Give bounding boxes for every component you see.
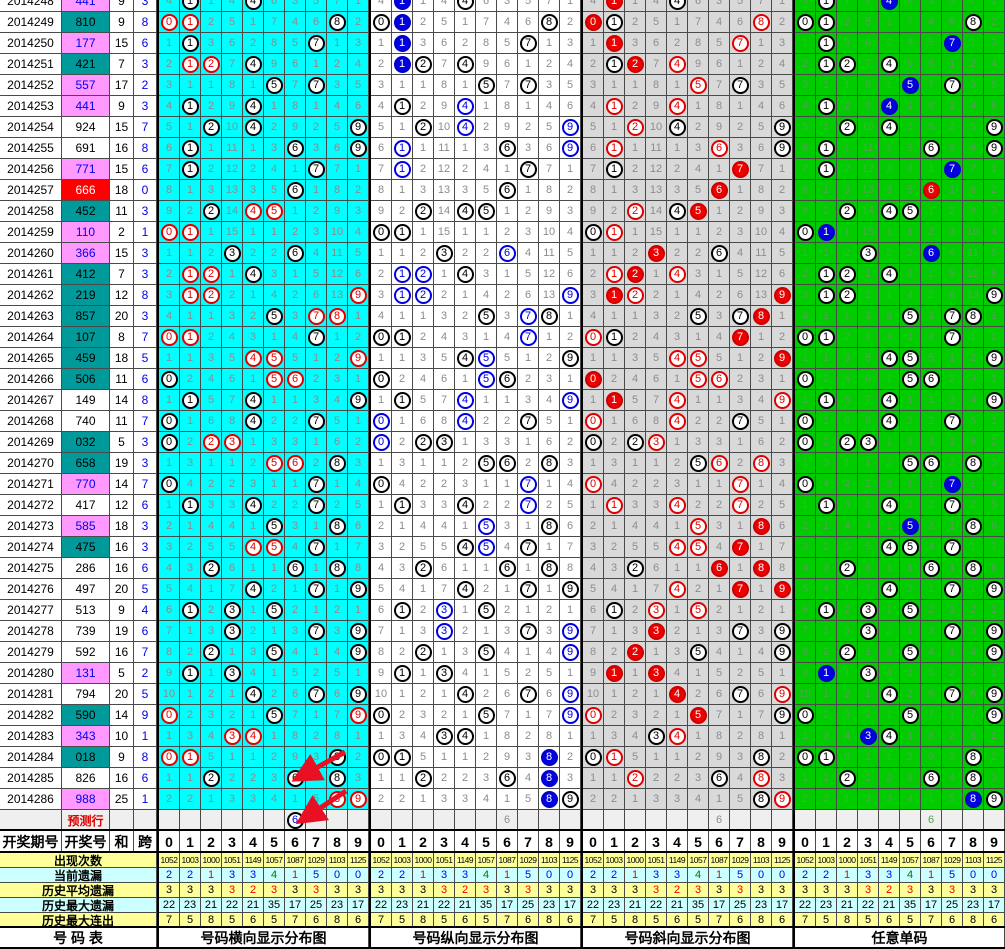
miss-count-cell: 1: [327, 537, 348, 558]
period-cell: 2014265: [0, 348, 62, 369]
miss-count-cell: 3: [201, 621, 222, 642]
miss-count-cell: 9: [858, 96, 879, 117]
miss-count-cell: 7: [942, 684, 963, 705]
miss-count-cell: 13: [963, 285, 984, 306]
miss-count-cell: 1: [159, 243, 180, 264]
miss-count-cell: 1: [646, 684, 667, 705]
miss-count-cell: 4: [816, 474, 837, 495]
miss-count-cell: 1: [413, 306, 434, 327]
miss-count-cell: 1: [604, 663, 625, 684]
miss-count-cell: 2: [900, 747, 921, 768]
miss-count-cell: 6: [539, 138, 560, 159]
miss-count-cell: 3: [518, 747, 539, 768]
drawn-number-circle: 3: [436, 245, 453, 262]
drawn-number-circle: 0: [797, 371, 814, 388]
period-cell: 2014261: [0, 264, 62, 285]
clipped-wrap: 4: [583, 0, 603, 12]
drawn-number-circle: 9: [562, 140, 579, 157]
miss-count-cell: [604, 810, 625, 831]
miss-count-cell: 7: [730, 684, 751, 705]
miss-count-cell: [583, 810, 604, 831]
period-cell: 2014272: [0, 495, 62, 516]
drawn-number-circle: 7: [308, 539, 325, 556]
miss-count-cell: 0: [371, 222, 392, 243]
sum-cell: 19: [110, 621, 134, 642]
miss-count-cell: 4: [879, 96, 900, 117]
miss-count-cell: 4: [795, 96, 816, 117]
miss-count-cell: 2: [201, 474, 222, 495]
miss-count-cell: [816, 810, 837, 831]
miss-count-cell: 1: [730, 180, 751, 201]
drawn-number-circle: 1: [394, 266, 411, 283]
drawn-number-circle: 9: [986, 287, 1003, 304]
miss-count-cell: 2: [625, 432, 646, 453]
miss-count-cell: 5: [222, 348, 243, 369]
miss-count-cell: 1: [413, 0, 434, 12]
miss-count-cell: 1: [816, 264, 837, 285]
miss-count-cell: 0: [795, 369, 816, 390]
miss-count-cell: 5: [942, 0, 963, 12]
miss-count-cell: 7: [751, 159, 772, 180]
miss-count-cell: 5: [837, 390, 858, 411]
miss-count-cell: 7: [963, 159, 984, 180]
miss-count-cell: 2: [667, 33, 688, 54]
miss-count-cell: 4: [900, 789, 921, 810]
drawn-number-circle: 4: [669, 350, 686, 367]
drawn-number-circle: 2: [839, 203, 856, 220]
miss-count-cell: 2: [180, 369, 201, 390]
period-cell: 2014285: [0, 768, 62, 789]
miss-count-cell: 4: [879, 495, 900, 516]
span-cell: 7: [134, 411, 157, 432]
clipped-wrap: 6: [900, 0, 920, 12]
miss-count-cell: 4: [667, 201, 688, 222]
drawn-number-circle: 0: [161, 413, 178, 430]
miss-count-cell: 1: [667, 75, 688, 96]
clipped-wrap: 4: [879, 0, 899, 12]
miss-count-cell: 10: [371, 684, 392, 705]
miss-count-cell: 1: [816, 411, 837, 432]
stat-value: 1125: [560, 853, 581, 868]
miss-count-cell: 2: [879, 768, 900, 789]
miss-count-cell: 2: [604, 642, 625, 663]
miss-count-cell: 2: [413, 12, 434, 33]
miss-count-cell: 4: [709, 642, 730, 663]
stat-value: 4: [900, 868, 921, 883]
drawn-number-circle: 1: [182, 140, 199, 157]
drawn-number-circle: 1: [394, 98, 411, 115]
miss-count-cell: 1: [264, 474, 285, 495]
miss-count-cell: 2: [751, 600, 772, 621]
miss-count-cell: 4: [476, 789, 497, 810]
miss-count-cell: 2: [201, 558, 222, 579]
drawn-number-circle: 7: [732, 308, 749, 325]
miss-count-cell: 1: [667, 12, 688, 33]
header-sum: 和: [110, 831, 134, 853]
miss-count-cell: 0: [583, 705, 604, 726]
miss-count-cell: 1: [772, 726, 793, 747]
clipped-wrap: 4: [371, 0, 391, 12]
drawn-number-circle: 0: [161, 371, 178, 388]
miss-count-cell: 9: [709, 747, 730, 768]
miss-count-cell: 1: [772, 600, 793, 621]
drawn-number-circle: 7: [944, 35, 961, 52]
miss-count-cell: 4: [772, 222, 793, 243]
miss-count-cell: 2: [625, 117, 646, 138]
miss-count-cell: 2: [604, 369, 625, 390]
drawn-number-circle: 4: [245, 497, 262, 514]
drawn-number-circle: 9: [774, 686, 791, 703]
miss-count-cell: 4: [285, 327, 306, 348]
miss-count-cell: 3: [392, 726, 413, 747]
drawn-number-circle: 7: [308, 476, 325, 493]
miss-count-cell: 2: [837, 285, 858, 306]
miss-count-cell: 3: [560, 201, 581, 222]
miss-count-cell: 1: [180, 12, 201, 33]
drawn-number-circle: 4: [457, 497, 474, 514]
miss-count-cell: 6: [285, 684, 306, 705]
drawn-number-circle: 5: [902, 77, 919, 94]
stat-value: 3: [646, 883, 667, 898]
miss-count-cell: 3: [921, 516, 942, 537]
miss-count-cell: 1: [201, 75, 222, 96]
miss-count-cell: 7: [306, 621, 327, 642]
miss-count-cell: 4: [583, 558, 604, 579]
miss-count-cell: 8: [795, 642, 816, 663]
miss-count-cell: 5: [434, 12, 455, 33]
miss-count-cell: 2: [476, 411, 497, 432]
period-cell: 2014279: [0, 642, 62, 663]
miss-count-cell: 7: [560, 537, 581, 558]
miss-count-cell: 7: [518, 495, 539, 516]
miss-count-cell: 4: [180, 474, 201, 495]
miss-count-cell: 7: [942, 159, 963, 180]
miss-count-cell: 1: [667, 285, 688, 306]
clipped-wrap: 4: [795, 0, 815, 12]
miss-count-cell: 4: [455, 117, 476, 138]
miss-count-cell: 1: [795, 33, 816, 54]
miss-count-cell: 7: [371, 159, 392, 180]
miss-count-cell: 1: [306, 348, 327, 369]
period-cell: 2014284: [0, 747, 62, 768]
miss-count-cell: 1: [434, 453, 455, 474]
drawn-number-circle: 6: [499, 245, 516, 262]
header-number: 开奖号: [62, 831, 110, 853]
drawn-number-circle: 0: [797, 749, 814, 766]
miss-count-cell: 7: [583, 621, 604, 642]
miss-count-cell: 4: [455, 537, 476, 558]
miss-count-cell: 1: [180, 243, 201, 264]
miss-count-cell: 4: [285, 12, 306, 33]
drawn-number-circle: 4: [245, 413, 262, 430]
miss-count-cell: 5: [837, 747, 858, 768]
miss-count-cell: 1: [667, 138, 688, 159]
miss-count-cell: 3: [285, 516, 306, 537]
drawn-number-circle: 5: [266, 371, 283, 388]
drawn-number-circle: 5: [690, 308, 707, 325]
stat-value: 21: [625, 898, 646, 913]
miss-count-cell: 8: [327, 726, 348, 747]
miss-count-cell: 5: [264, 453, 285, 474]
draw-number-cell: 557: [62, 75, 110, 96]
miss-count-cell: 5: [476, 180, 497, 201]
drawn-number-circle: 5: [902, 308, 919, 325]
miss-count-cell: 6: [751, 432, 772, 453]
stat-value: 2: [583, 868, 604, 883]
miss-count-cell: 1: [816, 180, 837, 201]
miss-count-cell: 1: [709, 264, 730, 285]
drawn-number-circle: 1: [182, 56, 199, 73]
miss-count-cell: 0: [371, 474, 392, 495]
miss-count-cell: [264, 810, 285, 831]
miss-count-cell: 9: [348, 117, 369, 138]
miss-count-cell: 8: [264, 33, 285, 54]
miss-count-cell: 0: [371, 12, 392, 33]
miss-count-cell: 5: [858, 348, 879, 369]
drawn-number-circle: 6: [287, 140, 304, 157]
miss-count-cell: 7: [327, 705, 348, 726]
miss-count-cell: 4: [243, 537, 264, 558]
miss-count-cell: 5: [688, 600, 709, 621]
miss-count-cell: 2: [625, 159, 646, 180]
miss-count-cell: 2: [159, 789, 180, 810]
miss-count-cell: 5: [539, 117, 560, 138]
miss-count-cell: 1: [942, 516, 963, 537]
miss-count-cell: 4: [837, 516, 858, 537]
stat-value: 21: [837, 898, 858, 913]
miss-count-cell: 2: [772, 180, 793, 201]
miss-count-cell: 7: [646, 54, 667, 75]
draw-number-cell: 666: [62, 180, 110, 201]
miss-count-cell: 3: [413, 33, 434, 54]
drawn-number-circle: 8: [329, 518, 346, 535]
miss-count-cell: 7: [539, 159, 560, 180]
drawn-number-circle: 9: [774, 644, 791, 661]
miss-count-cell: 9: [772, 705, 793, 726]
miss-count-cell: 2: [900, 495, 921, 516]
clipped-wrap: 4: [455, 0, 475, 12]
miss-count-cell: 1: [180, 180, 201, 201]
span-cell: 8: [134, 138, 157, 159]
miss-count-cell: 1: [413, 663, 434, 684]
miss-count-cell: 2: [772, 432, 793, 453]
miss-count-cell: 2: [264, 495, 285, 516]
stat-value: 23: [604, 898, 625, 913]
drawn-number-circle: 8: [329, 749, 346, 766]
miss-count-cell: 1: [392, 495, 413, 516]
sum-cell: 15: [110, 33, 134, 54]
header-digit: 8: [327, 831, 348, 853]
miss-count-cell: 1: [984, 306, 1005, 327]
miss-count-cell: 3: [348, 33, 369, 54]
drawn-number-circle: 3: [224, 665, 241, 682]
drawn-number-circle: 7: [520, 497, 537, 514]
miss-count-cell: 0: [371, 705, 392, 726]
miss-count-cell: 2: [730, 726, 751, 747]
miss-count-cell: 3: [222, 621, 243, 642]
miss-count-cell: 3: [285, 432, 306, 453]
period-cell: 2014262: [0, 285, 62, 306]
drawn-number-circle: 1: [394, 14, 411, 31]
draw-number-cell: 592: [62, 642, 110, 663]
sum-cell: 9: [110, 96, 134, 117]
miss-count-cell: 5: [476, 642, 497, 663]
miss-count-cell: 3: [604, 726, 625, 747]
miss-count-cell: 3: [306, 390, 327, 411]
miss-count-cell: 8: [900, 33, 921, 54]
miss-count-cell: 3: [858, 621, 879, 642]
span-cell: 8: [134, 747, 157, 768]
miss-count-cell: 2: [667, 306, 688, 327]
drawn-number-circle: 7: [308, 161, 325, 178]
miss-count-cell: 4: [879, 411, 900, 432]
miss-count-cell: 8: [921, 96, 942, 117]
drawn-number-circle: 0: [373, 329, 390, 346]
stat-value: 3: [646, 868, 667, 883]
miss-count-cell: 1: [837, 0, 858, 12]
stat-value: 1: [709, 868, 730, 883]
drawn-number-circle: 1: [394, 602, 411, 619]
drawn-number-circle: 5: [478, 77, 495, 94]
miss-count-cell: 2: [348, 180, 369, 201]
drawn-number-circle: 7: [732, 329, 749, 346]
clipped-wrap: 3: [285, 0, 305, 12]
clipped-wrap: 1: [348, 0, 368, 12]
miss-count-cell: 4: [667, 117, 688, 138]
miss-count-cell: 1: [413, 579, 434, 600]
miss-count-cell: 6: [709, 558, 730, 579]
drawn-number-circle: 5: [266, 455, 283, 472]
miss-count-cell: 1: [604, 348, 625, 369]
miss-count-cell: 4: [243, 390, 264, 411]
miss-count-cell: 5: [285, 33, 306, 54]
miss-count-cell: 4: [222, 516, 243, 537]
header-digit: 7: [942, 831, 963, 853]
clipped-wrap: 441: [62, 0, 109, 12]
draw-number-cell: 452: [62, 201, 110, 222]
sum-cell: 5: [110, 663, 134, 684]
miss-count-cell: 5: [858, 12, 879, 33]
miss-count-cell: 2: [285, 411, 306, 432]
drawn-number-circle: 7: [308, 581, 325, 598]
miss-count-cell: 2: [201, 432, 222, 453]
drawn-number-circle: 4: [881, 203, 898, 220]
clipped-wrap: 3: [497, 0, 517, 12]
drawn-number-circle: 7: [944, 77, 961, 94]
miss-count-cell: 3: [837, 348, 858, 369]
miss-count-cell: 1: [243, 369, 264, 390]
drawn-number-circle: 7: [944, 161, 961, 178]
miss-count-cell: 9: [348, 642, 369, 663]
stat-value: 1: [497, 868, 518, 883]
drawn-number-circle: 4: [669, 728, 686, 745]
miss-count-cell: 3: [921, 306, 942, 327]
draw-number-cell: 286: [62, 558, 110, 579]
drawn-number-circle: 9: [774, 707, 791, 724]
drawn-number-circle: 0: [373, 413, 390, 430]
miss-count-cell: 6: [560, 96, 581, 117]
miss-count-cell: [413, 810, 434, 831]
drawn-number-circle: 7: [308, 413, 325, 430]
miss-count-cell: 1: [243, 558, 264, 579]
miss-count-cell: [646, 810, 667, 831]
miss-count-cell: 1: [900, 222, 921, 243]
drawn-number-circle: 1: [818, 161, 835, 178]
stat-value: 3: [371, 883, 392, 898]
miss-count-cell: 2: [646, 474, 667, 495]
drawn-number-circle: 0: [161, 476, 178, 493]
miss-count-cell: 4: [625, 369, 646, 390]
miss-count-cell: 4: [560, 474, 581, 495]
miss-count-cell: 2: [348, 12, 369, 33]
miss-count-cell: 5: [434, 348, 455, 369]
miss-count-cell: 3: [413, 705, 434, 726]
period-cell: 2014281: [0, 684, 62, 705]
miss-count-cell: 2: [942, 117, 963, 138]
drawn-number-circle: 3: [648, 665, 665, 682]
miss-count-cell: 1: [879, 705, 900, 726]
miss-count-cell: 11: [327, 243, 348, 264]
drawn-number-circle: 7: [520, 161, 537, 178]
miss-count-cell: 1: [306, 516, 327, 537]
miss-count-cell: 2: [497, 222, 518, 243]
stat-value: 1003: [816, 853, 837, 868]
miss-count-cell: 1: [625, 453, 646, 474]
miss-count-cell: 10: [434, 117, 455, 138]
miss-count-cell: 2: [709, 600, 730, 621]
miss-count-cell: 1: [816, 495, 837, 516]
sum-cell: 14: [110, 474, 134, 495]
miss-count-cell: 1: [816, 285, 837, 306]
miss-count-cell: 9: [560, 579, 581, 600]
miss-count-cell: 2: [709, 495, 730, 516]
miss-count-cell: 3: [795, 537, 816, 558]
miss-count-cell: 1: [583, 495, 604, 516]
miss-count-cell: 1: [646, 747, 667, 768]
stat-value: 21: [243, 898, 264, 913]
clipped-wrap: 4: [667, 0, 687, 12]
stat-value: 1103: [963, 853, 984, 868]
drawn-number-circle: 6: [711, 770, 728, 787]
miss-count-cell: 5: [264, 516, 285, 537]
miss-count-cell: 5: [264, 705, 285, 726]
drawn-number-circle: 1: [818, 287, 835, 304]
sum-cell: 11: [110, 369, 134, 390]
miss-count-cell: 1: [243, 138, 264, 159]
miss-count-cell: 2: [476, 747, 497, 768]
miss-count-cell: 1: [646, 642, 667, 663]
miss-count-cell: 1: [604, 684, 625, 705]
miss-count-cell: 2: [455, 243, 476, 264]
miss-count-cell: 1: [476, 726, 497, 747]
span-cell: 3: [134, 537, 157, 558]
miss-count-cell: 5: [348, 75, 369, 96]
stat-value: 3: [900, 883, 921, 898]
draw-number-cell: 177: [62, 33, 110, 54]
sum-cell: 7: [110, 54, 134, 75]
drawn-number-circle: 8: [965, 791, 982, 808]
clipped-wrap: 7: [327, 0, 347, 12]
drawn-number-circle: 5: [902, 602, 919, 619]
miss-count-cell: 6: [327, 138, 348, 159]
drawn-number-circle: 3: [224, 245, 241, 262]
miss-count-cell: 3: [455, 789, 476, 810]
header-digit: 8: [539, 831, 560, 853]
stat-value: 1: [837, 868, 858, 883]
miss-count-cell: 1: [900, 474, 921, 495]
stat-value: 3: [560, 883, 581, 898]
drawn-number-circle: 4: [245, 0, 262, 10]
